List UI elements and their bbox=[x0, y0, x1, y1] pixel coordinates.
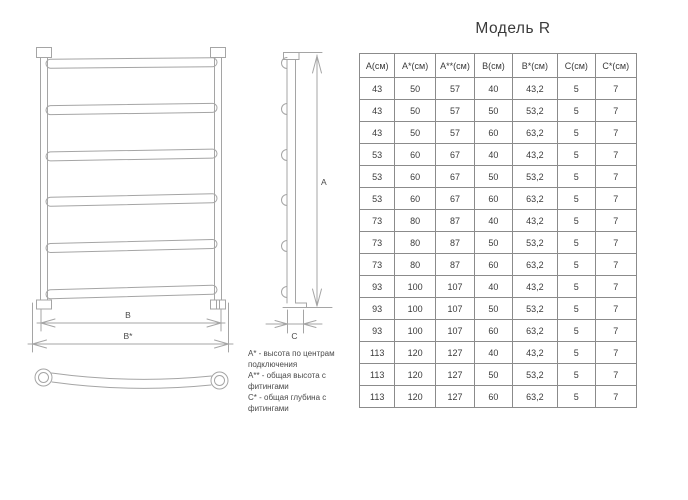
table-cell: 43,2 bbox=[512, 276, 557, 298]
dimension-a-label: А bbox=[321, 177, 327, 187]
table-row: 931001076063,257 bbox=[360, 320, 637, 342]
table-cell: 40 bbox=[475, 276, 512, 298]
table-cell: 53,2 bbox=[512, 364, 557, 386]
right-post-foot bbox=[211, 300, 220, 309]
table-cell: 60 bbox=[395, 188, 435, 210]
table-cell: 5 bbox=[558, 232, 595, 254]
table-cell: 53,2 bbox=[512, 100, 557, 122]
table-cell: 100 bbox=[395, 298, 435, 320]
table-cell: 5 bbox=[558, 386, 595, 408]
table-cell: 5 bbox=[558, 166, 595, 188]
table-body: 4350574043,2574350575053,2574350576063,2… bbox=[360, 78, 637, 408]
table-cell: 50 bbox=[395, 100, 435, 122]
table-cell: 43,2 bbox=[512, 144, 557, 166]
table-cell: 5 bbox=[558, 254, 595, 276]
table-cell: 120 bbox=[395, 364, 435, 386]
rungs bbox=[46, 58, 217, 299]
table-cell: 127 bbox=[435, 342, 474, 364]
table-cell: 63,2 bbox=[512, 386, 557, 408]
table-cell: 107 bbox=[435, 276, 474, 298]
spec-table: А(см)А*(см)А**(см)В(см)В*(см)С(см)С*(см)… bbox=[359, 53, 637, 408]
table-cell: 113 bbox=[360, 364, 395, 386]
table-cell: 43 bbox=[360, 122, 395, 144]
table-row: 931001074043,257 bbox=[360, 276, 637, 298]
table-cell: 93 bbox=[360, 298, 395, 320]
dimension-b: В bbox=[37, 309, 225, 331]
table-cell: 7 bbox=[595, 254, 637, 276]
table-cell: 80 bbox=[395, 232, 435, 254]
table-cell: 40 bbox=[475, 342, 512, 364]
table-cell: 7 bbox=[595, 276, 637, 298]
table-cell: 50 bbox=[475, 232, 512, 254]
table-cell: 120 bbox=[395, 342, 435, 364]
table-row: 4350574043,257 bbox=[360, 78, 637, 100]
table-cell: 87 bbox=[435, 210, 474, 232]
table-row: 1131201274043,257 bbox=[360, 342, 637, 364]
table-cell: 87 bbox=[435, 254, 474, 276]
table-cell: 43 bbox=[360, 78, 395, 100]
table-header-cell: С(см) bbox=[558, 54, 595, 78]
table-cell: 5 bbox=[558, 188, 595, 210]
table-cell: 80 bbox=[395, 210, 435, 232]
legend-item: А** - общая высота с фитингами bbox=[248, 370, 360, 392]
dimension-c: С bbox=[266, 310, 322, 341]
dimension-b-star-label: В* bbox=[124, 331, 134, 341]
table-cell: 53 bbox=[360, 188, 395, 210]
table-cell: 5 bbox=[558, 122, 595, 144]
table-cell: 7 bbox=[595, 298, 637, 320]
table-cell: 7 bbox=[595, 320, 637, 342]
table-cell: 120 bbox=[395, 386, 435, 408]
table-cell: 67 bbox=[435, 166, 474, 188]
table-cell: 63,2 bbox=[512, 188, 557, 210]
table-cell: 7 bbox=[595, 144, 637, 166]
table-cell: 5 bbox=[558, 210, 595, 232]
dimension-a: А bbox=[313, 55, 328, 306]
table-cell: 43,2 bbox=[512, 342, 557, 364]
table-header-row: А(см)А*(см)А**(см)В(см)В*(см)С(см)С*(см) bbox=[360, 54, 637, 78]
table-row: 931001075053,257 bbox=[360, 298, 637, 320]
table-cell: 93 bbox=[360, 320, 395, 342]
table-cell: 60 bbox=[475, 320, 512, 342]
table-row: 7380874043,257 bbox=[360, 210, 637, 232]
table-cell: 50 bbox=[475, 364, 512, 386]
table-cell: 73 bbox=[360, 232, 395, 254]
page-title: Модель R bbox=[374, 20, 652, 38]
table-cell: 63,2 bbox=[512, 122, 557, 144]
table-header-cell: А**(см) bbox=[435, 54, 474, 78]
table-row: 7380875053,257 bbox=[360, 232, 637, 254]
table-cell: 7 bbox=[595, 210, 637, 232]
rung-stubs bbox=[282, 58, 288, 298]
legend: А* - высота по центрам подключенияА** - … bbox=[248, 348, 360, 414]
table-cell: 5 bbox=[558, 320, 595, 342]
table-cell: 60 bbox=[395, 144, 435, 166]
table-cell: 53,2 bbox=[512, 232, 557, 254]
left-post-foot bbox=[37, 300, 52, 309]
table-cell: 7 bbox=[595, 364, 637, 386]
table-cell: 5 bbox=[558, 144, 595, 166]
table-row: 4350575053,257 bbox=[360, 100, 637, 122]
table-cell: 53 bbox=[360, 166, 395, 188]
table-row: 4350576063,257 bbox=[360, 122, 637, 144]
table-row: 1131201276063,257 bbox=[360, 386, 637, 408]
table-cell: 5 bbox=[558, 100, 595, 122]
table-cell: 50 bbox=[395, 78, 435, 100]
table-cell: 50 bbox=[475, 298, 512, 320]
table-cell: 100 bbox=[395, 276, 435, 298]
table-cell: 43 bbox=[360, 100, 395, 122]
front-view: В В* bbox=[28, 48, 233, 353]
table-cell: 7 bbox=[595, 386, 637, 408]
table-cell: 50 bbox=[475, 100, 512, 122]
table-header-cell: В(см) bbox=[475, 54, 512, 78]
table-cell: 5 bbox=[558, 276, 595, 298]
table-cell: 5 bbox=[558, 78, 595, 100]
table-cell: 7 bbox=[595, 166, 637, 188]
table-cell: 63,2 bbox=[512, 320, 557, 342]
table-row: 1131201275053,257 bbox=[360, 364, 637, 386]
table-cell: 50 bbox=[475, 166, 512, 188]
table-cell: 80 bbox=[395, 254, 435, 276]
table-cell: 57 bbox=[435, 122, 474, 144]
table-cell: 113 bbox=[360, 342, 395, 364]
table-row: 5360676063,257 bbox=[360, 188, 637, 210]
table-cell: 53,2 bbox=[512, 298, 557, 320]
table-cell: 73 bbox=[360, 210, 395, 232]
table-cell: 107 bbox=[435, 320, 474, 342]
table-cell: 5 bbox=[558, 364, 595, 386]
table-cell: 67 bbox=[435, 188, 474, 210]
table-cell: 67 bbox=[435, 144, 474, 166]
table-cell: 93 bbox=[360, 276, 395, 298]
table-cell: 127 bbox=[435, 386, 474, 408]
table-header-cell: В*(см) bbox=[512, 54, 557, 78]
table-cell: 73 bbox=[360, 254, 395, 276]
side-view: А С bbox=[266, 53, 332, 342]
table-cell: 60 bbox=[475, 386, 512, 408]
table-cell: 40 bbox=[475, 210, 512, 232]
table-cell: 127 bbox=[435, 364, 474, 386]
table-cell: 5 bbox=[558, 342, 595, 364]
left-post-cap bbox=[37, 48, 52, 58]
table-cell: 57 bbox=[435, 100, 474, 122]
table-cell: 7 bbox=[595, 78, 637, 100]
table-header-cell: А(см) bbox=[360, 54, 395, 78]
table-header-cell: А*(см) bbox=[395, 54, 435, 78]
legend-item: С* - общая глубина с фитингами bbox=[248, 392, 360, 414]
table-row: 5360675053,257 bbox=[360, 166, 637, 188]
table-cell: 40 bbox=[475, 144, 512, 166]
side-post-cap bbox=[284, 53, 300, 60]
table-cell: 53 bbox=[360, 144, 395, 166]
table-cell: 87 bbox=[435, 232, 474, 254]
table-cell: 60 bbox=[475, 122, 512, 144]
dimension-c-label: С bbox=[291, 331, 297, 341]
table-cell: 7 bbox=[595, 100, 637, 122]
table-row: 7380876063,257 bbox=[360, 254, 637, 276]
table-cell: 60 bbox=[475, 188, 512, 210]
table-cell: 113 bbox=[360, 386, 395, 408]
table-cell: 63,2 bbox=[512, 254, 557, 276]
table-cell: 5 bbox=[558, 298, 595, 320]
table-cell: 7 bbox=[595, 188, 637, 210]
table-cell: 100 bbox=[395, 320, 435, 342]
legend-item: А* - высота по центрам подключения bbox=[248, 348, 360, 370]
table-cell: 43,2 bbox=[512, 210, 557, 232]
table-cell: 60 bbox=[475, 254, 512, 276]
table-cell: 53,2 bbox=[512, 166, 557, 188]
spec-sheet-page: В В* bbox=[0, 0, 688, 500]
table-cell: 60 bbox=[395, 166, 435, 188]
table-header-cell: С*(см) bbox=[595, 54, 637, 78]
table-cell: 7 bbox=[595, 122, 637, 144]
table-cell: 7 bbox=[595, 342, 637, 364]
table-cell: 43,2 bbox=[512, 78, 557, 100]
table-cell: 40 bbox=[475, 78, 512, 100]
table-cell: 107 bbox=[435, 298, 474, 320]
dimension-b-label: В bbox=[125, 310, 131, 320]
table-cell: 57 bbox=[435, 78, 474, 100]
table-cell: 7 bbox=[595, 232, 637, 254]
right-post-cap bbox=[211, 48, 226, 58]
table-cell: 50 bbox=[395, 122, 435, 144]
curved-tube-top-view bbox=[35, 369, 228, 389]
table-row: 5360674043,257 bbox=[360, 144, 637, 166]
